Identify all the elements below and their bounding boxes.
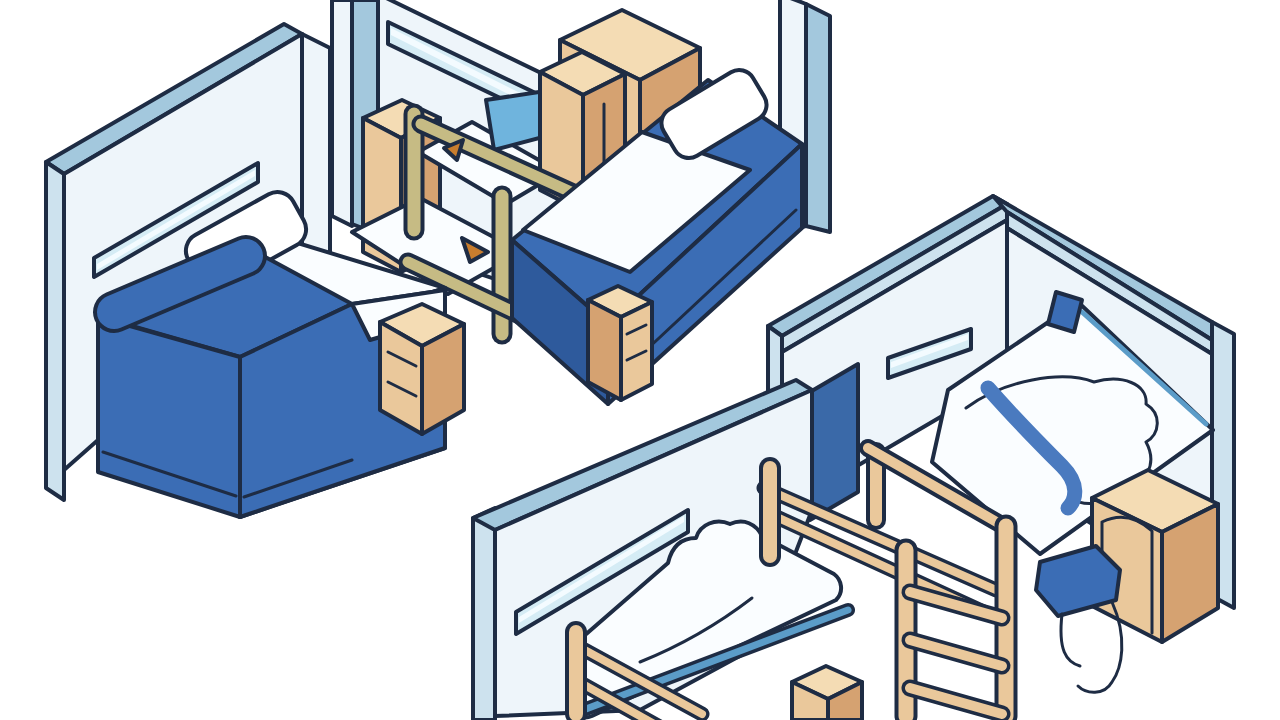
middle-wall-right-edge xyxy=(806,4,830,232)
illustration-root xyxy=(0,0,1280,720)
footboard-left xyxy=(588,300,621,400)
left-wall-edge xyxy=(46,162,64,500)
middle-wall-outer-strip xyxy=(332,0,352,226)
right-bed-blue-pillow xyxy=(1048,292,1082,332)
isometric-bedrooms-illustration xyxy=(0,0,1280,720)
front-wall-edge xyxy=(473,508,495,720)
illustration-stage xyxy=(0,0,1280,720)
right-room-door xyxy=(810,364,858,520)
